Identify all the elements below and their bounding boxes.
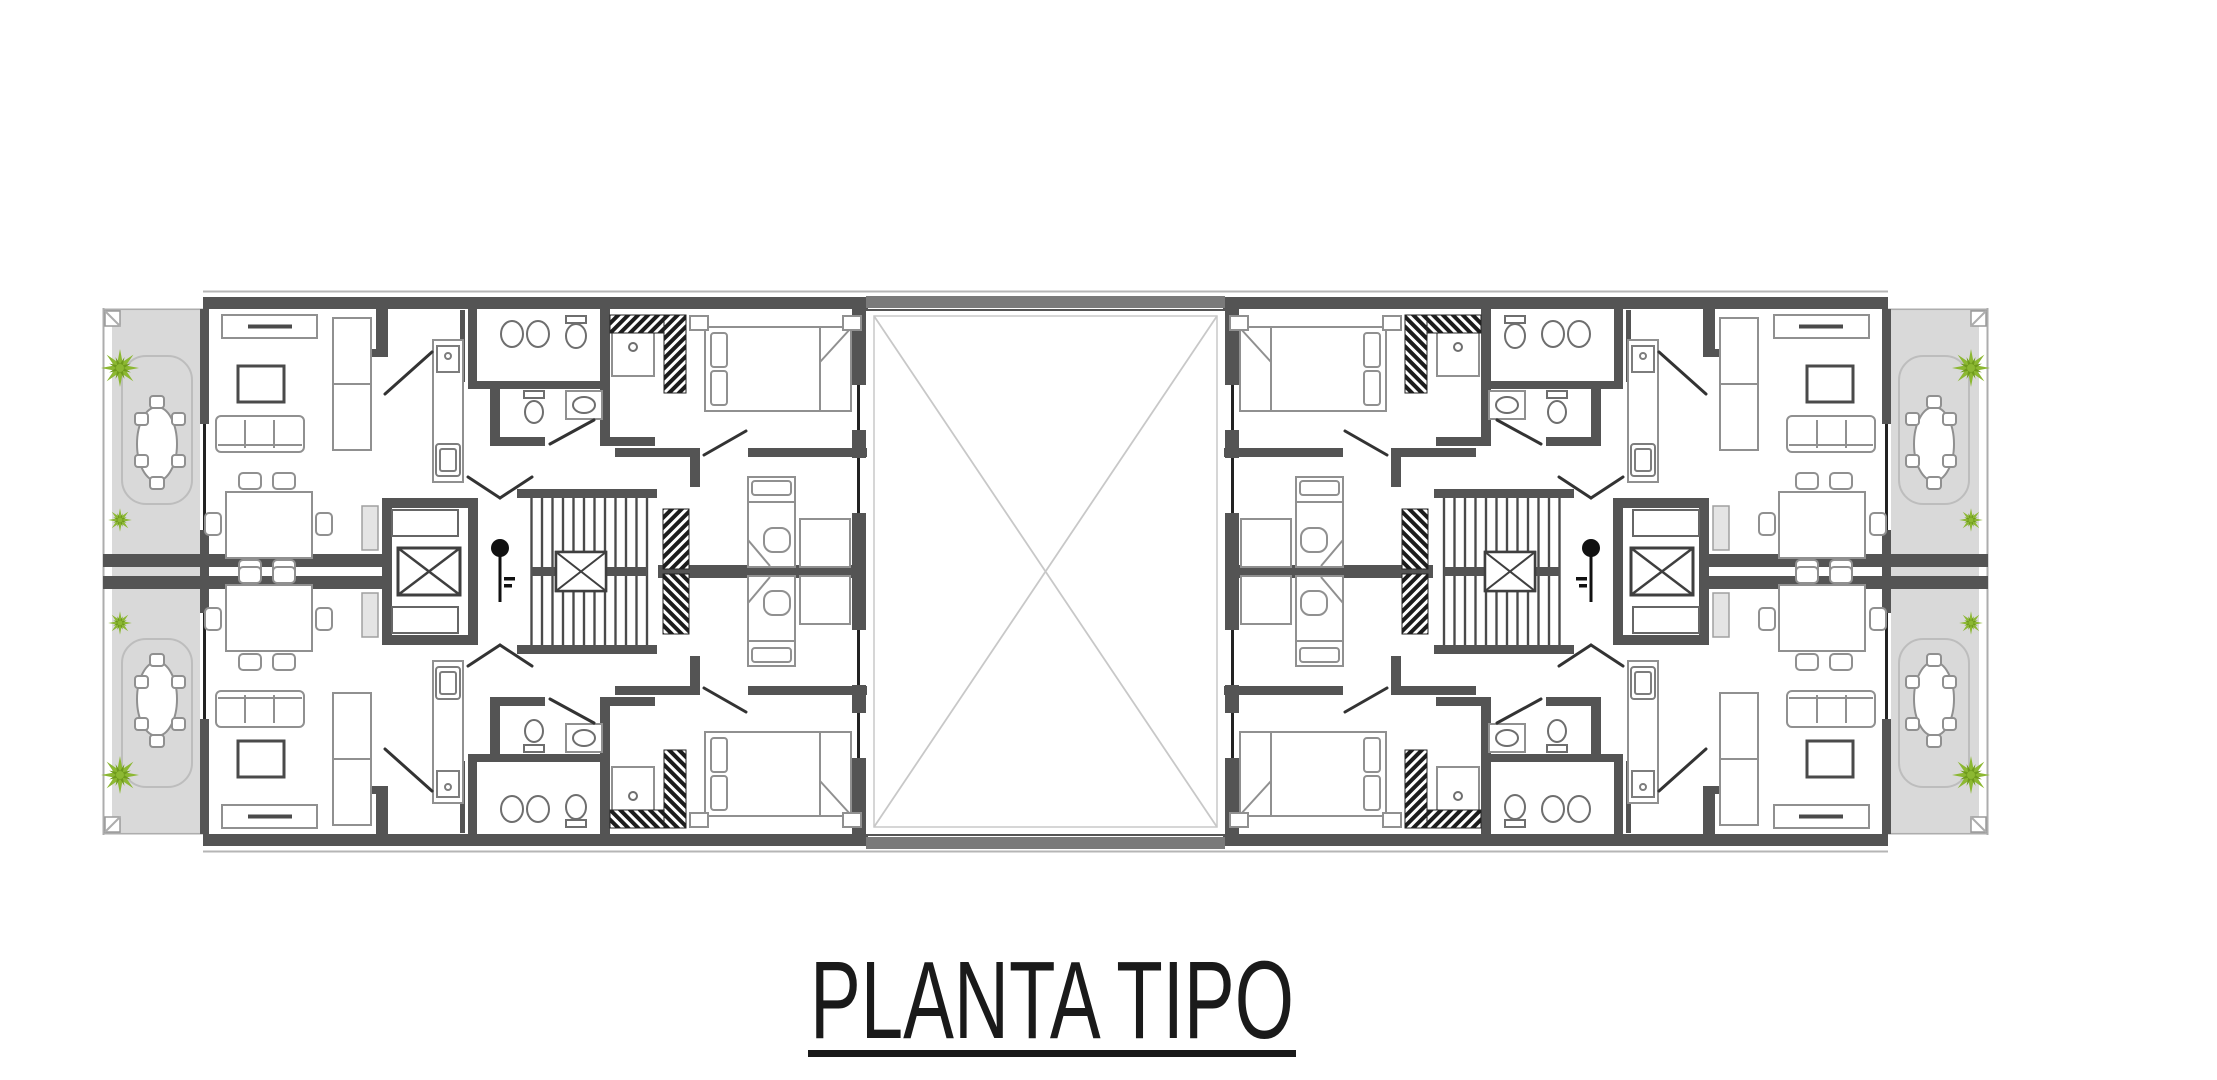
balcony	[101, 308, 203, 572]
dining-table	[226, 492, 312, 558]
bedroom-2	[748, 477, 850, 567]
desk	[800, 519, 850, 567]
sofa	[216, 416, 304, 452]
nightstand	[843, 316, 861, 330]
tree-icon	[101, 349, 139, 387]
kitchen	[433, 340, 463, 482]
living-room	[205, 315, 371, 576]
washbasin-icon	[527, 321, 549, 347]
floor-plan-page: PLANTA TIPO	[0, 0, 2217, 1080]
nightstand	[690, 316, 708, 330]
wardrobe	[664, 315, 686, 393]
floor-plan: PLANTA TIPO	[0, 0, 2217, 1080]
bedroom-1	[690, 316, 861, 411]
title-underline	[808, 1050, 1296, 1057]
wardrobe	[663, 509, 689, 569]
wardrobe	[610, 315, 672, 333]
section-marker-icon	[1576, 539, 1600, 602]
central-void	[866, 296, 1225, 849]
bush-icon	[108, 508, 132, 532]
section-marker-icon	[491, 539, 515, 602]
plan-title: PLANTA TIPO	[810, 939, 1294, 1062]
toilet-icon	[566, 324, 586, 348]
coffee-table	[238, 366, 284, 402]
toilet-icon	[525, 401, 543, 423]
washbasin-icon	[501, 321, 523, 347]
desk-chair	[764, 528, 790, 552]
